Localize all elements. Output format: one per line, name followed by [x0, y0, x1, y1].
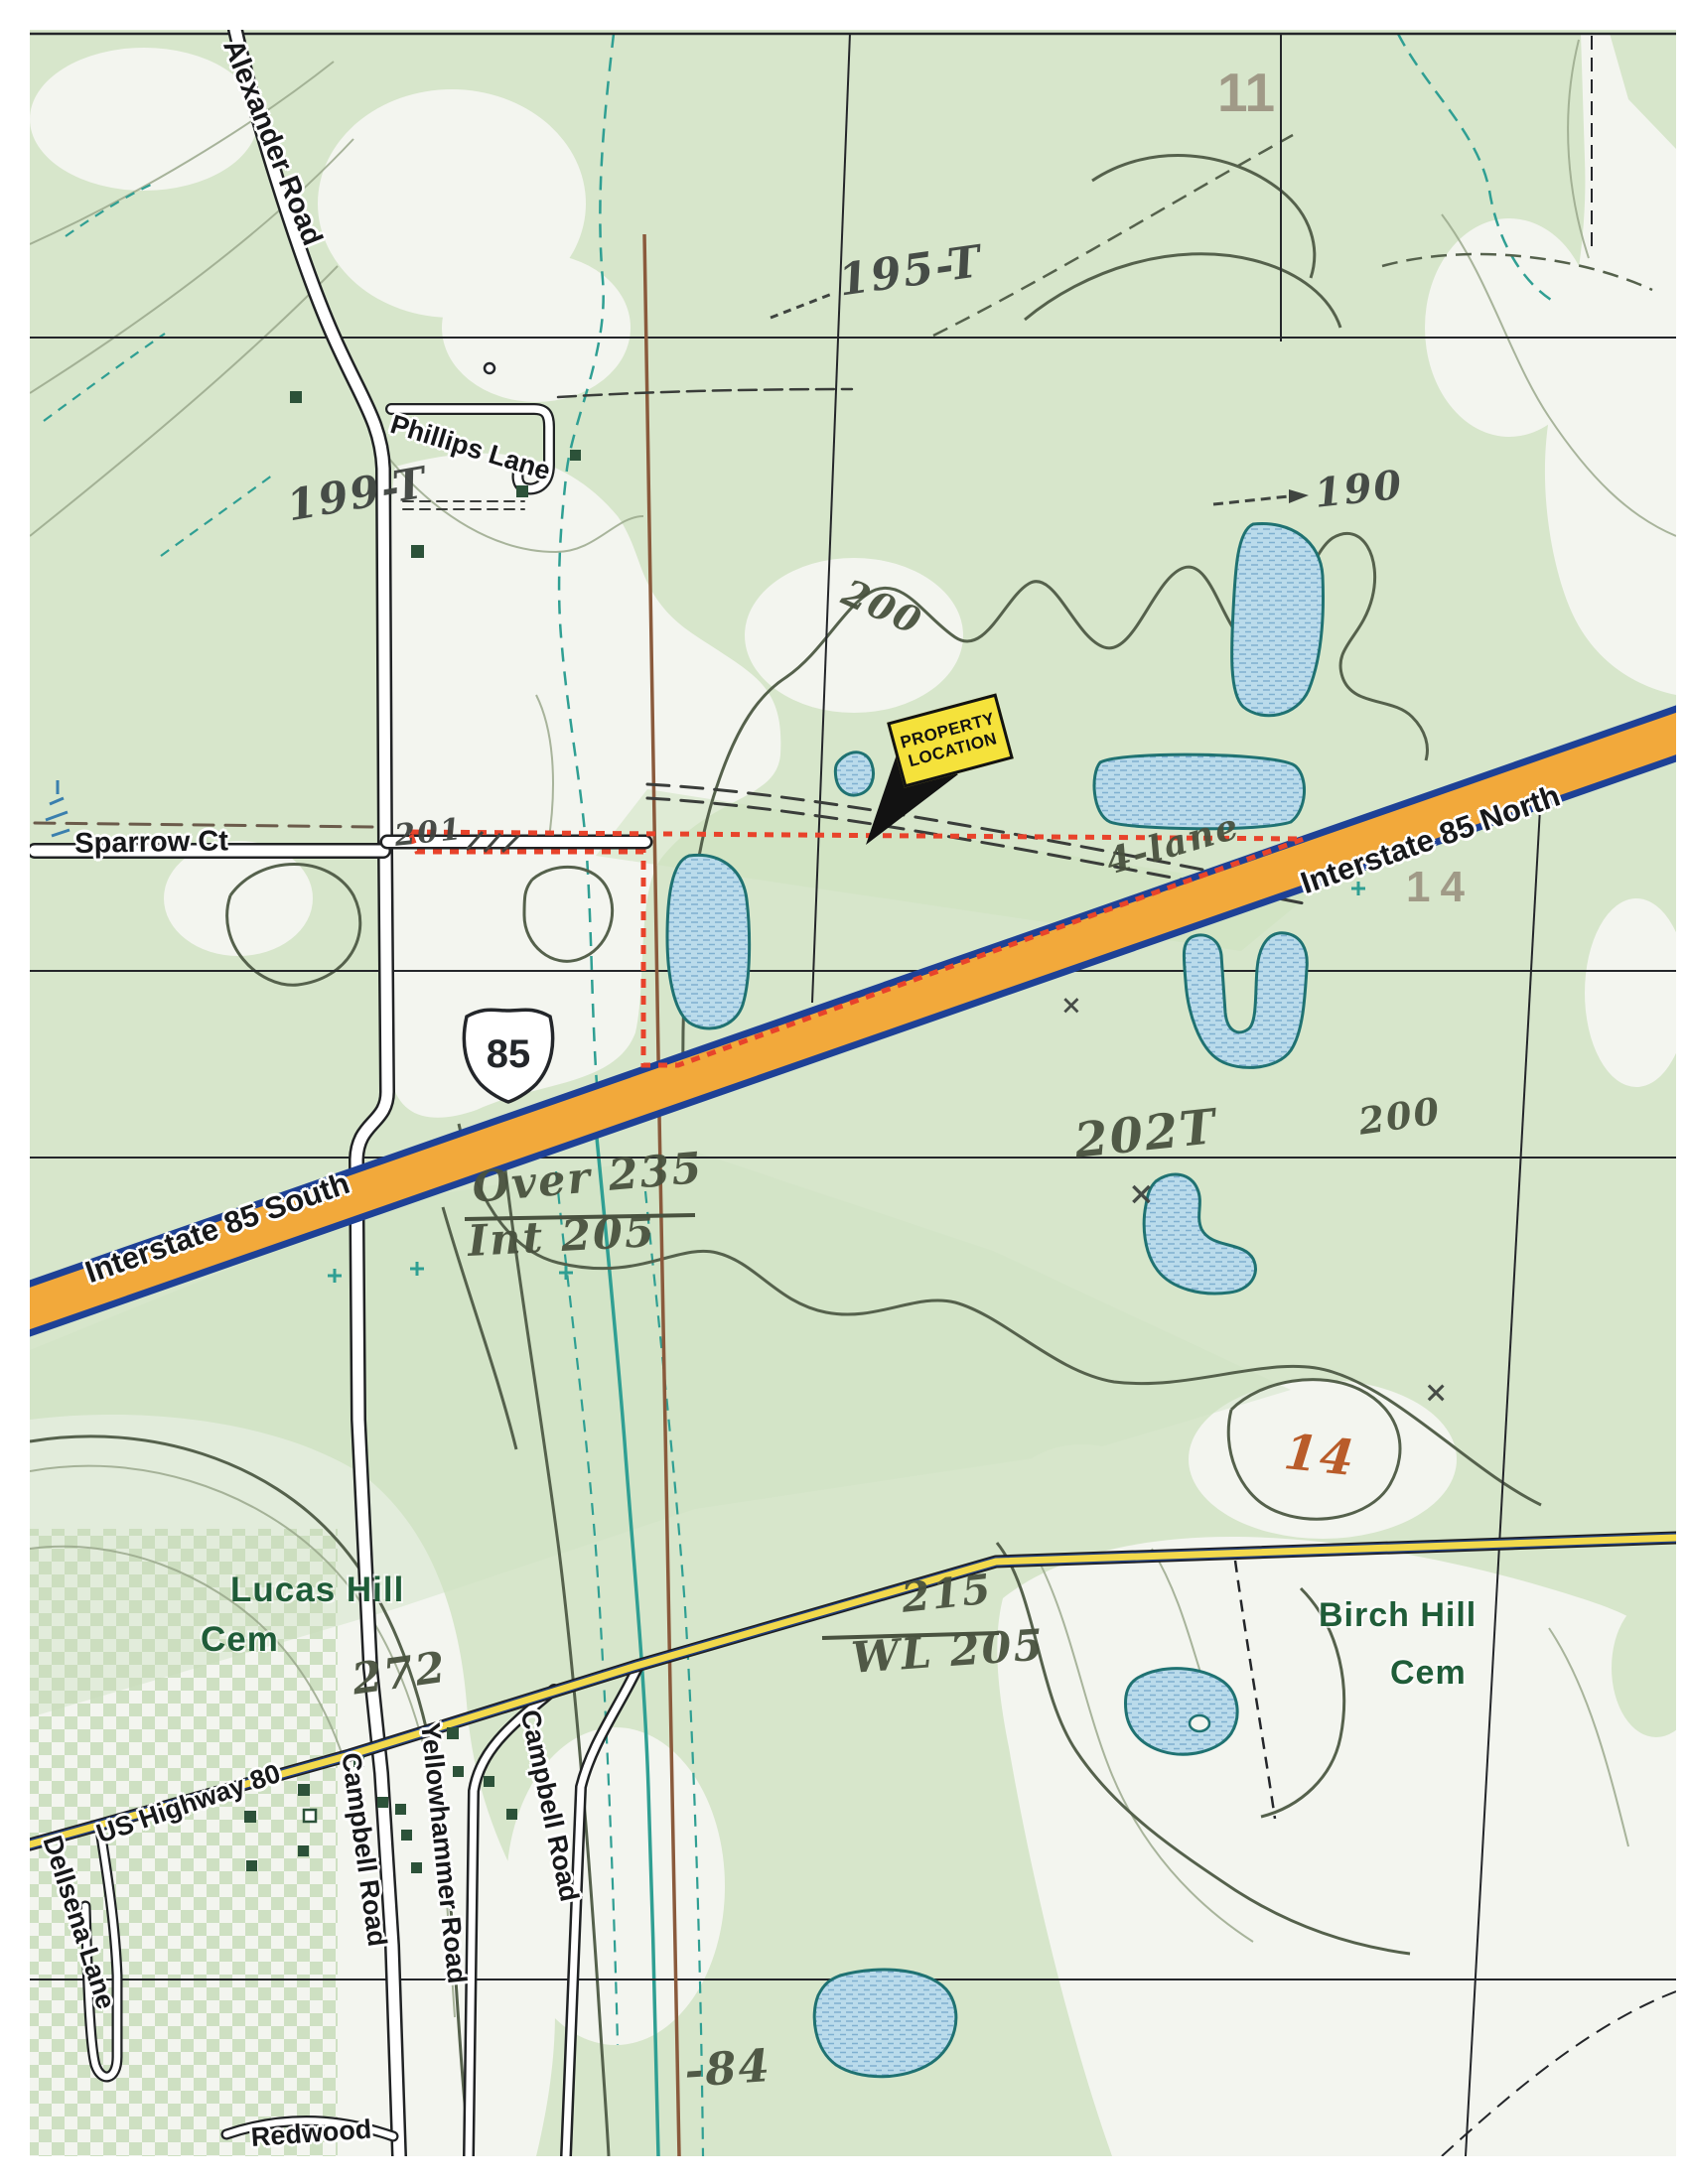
- scanned-topo-map-page: { "document": {"type": "scanned USGS-sty…: [0, 0, 1688, 2184]
- yellowhammer-road-label: Yellowhammer Road: [416, 1721, 470, 1984]
- campbell-road-west-label: Campbell Road: [337, 1751, 390, 1948]
- elev-190-annotation: 190: [1313, 466, 1405, 514]
- elev-215-annotation: 215: [900, 1569, 994, 1618]
- elev-195t-annotation: 195-T: [836, 240, 985, 304]
- labels-layer: Alexander Road Phillips Lane Sparrow Ct …: [0, 0, 1688, 2184]
- contour-200-upper-label: 200: [837, 574, 927, 641]
- water-level-205-annotation: WL 205: [850, 1624, 1047, 1681]
- elev-199t-annotation: 199-T: [284, 462, 431, 528]
- lucas-hill-label: Lucas Hill: [230, 1572, 404, 1607]
- x-mark-202t: ×: [1128, 1177, 1157, 1209]
- sparrow-ct-label: Sparrow Ct: [74, 827, 228, 859]
- section-11-number: 11: [1217, 66, 1275, 120]
- elev-272-annotation: 272: [350, 1647, 450, 1703]
- lucas-cem-label: Cem: [201, 1622, 279, 1657]
- alexander-road-label: Alexander Road: [217, 36, 327, 250]
- us-highway-80-label: US Highway 80: [93, 1760, 284, 1848]
- over-clearance-annotation: Over 235: [471, 1148, 705, 1210]
- section-14-handwritten: 14: [1282, 1428, 1358, 1483]
- four-lane-annotation: 4-lane: [1102, 808, 1244, 881]
- interstate-85-shield-number: 85: [479, 1032, 538, 1077]
- x-mark-pond: ×: [1060, 993, 1084, 1019]
- birch-hill-label: Birch Hill: [1319, 1598, 1477, 1632]
- elev-202t-annotation: 202T: [1072, 1103, 1219, 1165]
- section-14-number: 14: [1406, 866, 1475, 909]
- contour-200-right-label: 200: [1356, 1092, 1444, 1140]
- elev-84-annotation: -84: [683, 2043, 773, 2094]
- redwood-label: Redwood: [250, 2116, 372, 2151]
- x-mark-birch: ×: [1424, 1378, 1450, 1407]
- parcel-201-annotation: 201: [393, 815, 464, 852]
- campbell-road-east-label: Campbell Road: [516, 1707, 583, 1904]
- birch-cem-label: Cem: [1390, 1656, 1467, 1690]
- interstate-85-south-label: Interstate 85 South: [81, 1167, 353, 1288]
- int-clearance-annotation: Int 205: [467, 1211, 657, 1264]
- dellsena-lane-label: Dellsena Lane: [38, 1833, 119, 2012]
